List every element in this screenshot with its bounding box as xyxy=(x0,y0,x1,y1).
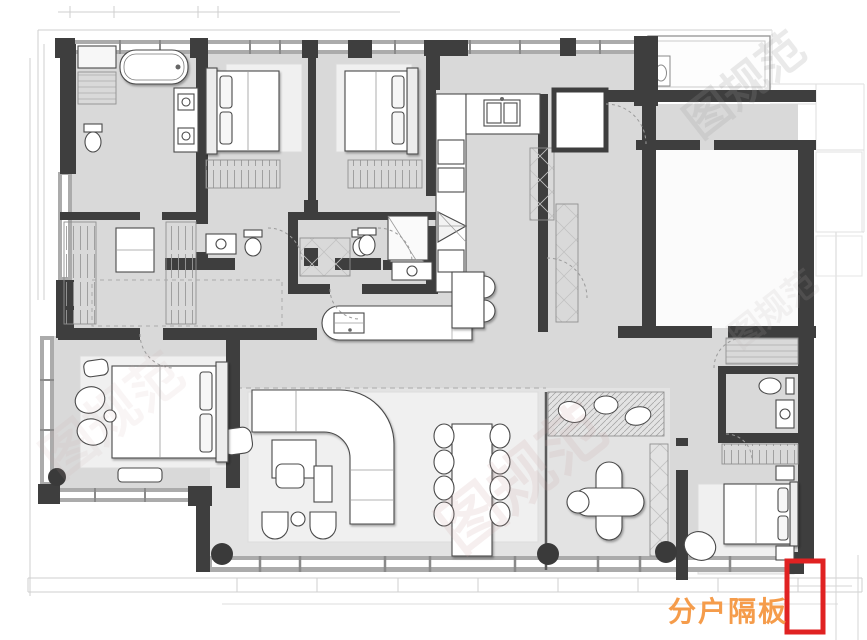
toilet-icon-wc1 xyxy=(84,124,102,152)
kitchen-island-icon xyxy=(322,306,472,340)
bottom-window-band xyxy=(208,556,800,572)
bath1-fixtures xyxy=(206,230,262,256)
nightstand-icon-a xyxy=(776,466,794,480)
foyer-cabinet-a xyxy=(530,148,554,220)
column-icon xyxy=(211,543,233,565)
column-icon xyxy=(655,541,677,563)
hall-tall-cabinet xyxy=(650,444,668,556)
partition-annotation-label: 分户隔板 xyxy=(668,595,788,627)
floor-plan-drawing: dresser xyxy=(0,0,867,640)
floor-plan-page: dresser xyxy=(0,0,867,640)
bed2-icon xyxy=(345,68,418,154)
bed1-icon xyxy=(206,68,279,154)
nightstand-icon-b xyxy=(776,546,794,560)
bed3-icon xyxy=(724,482,798,546)
column-icon xyxy=(537,543,559,565)
bedroom3-wardrobe xyxy=(722,444,798,464)
master-closet-right xyxy=(166,222,196,324)
wc-shelf xyxy=(78,46,116,68)
master-closet-left xyxy=(64,222,96,324)
bottom-left-window-band xyxy=(42,488,192,502)
linen-shelves xyxy=(78,72,116,104)
bedroom1-wardrobe xyxy=(206,160,280,188)
bedroom2-wardrobe xyxy=(348,160,422,188)
bed-bench-icon xyxy=(118,468,162,482)
bathtub-icon xyxy=(120,50,188,84)
lift-shaft xyxy=(554,90,606,150)
vanity-double-icon xyxy=(174,88,198,152)
masterbath-bench xyxy=(300,238,350,276)
